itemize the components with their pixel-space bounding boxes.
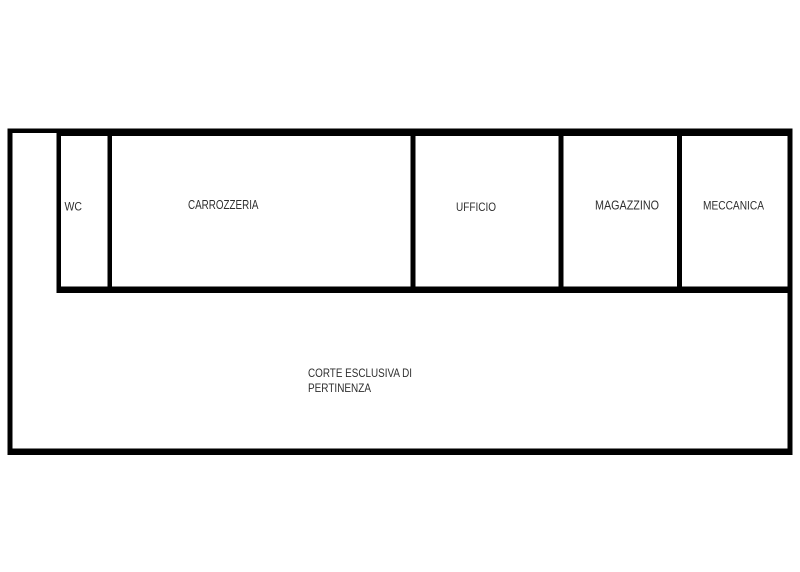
- svg-text:UFFICIO: UFFICIO: [456, 202, 496, 214]
- svg-text:WC: WC: [65, 202, 83, 214]
- svg-text:PERTINENZA: PERTINENZA: [308, 381, 371, 395]
- svg-text:CORTE ESCLUSIVA DI: CORTE ESCLUSIVA DI: [308, 366, 412, 380]
- svg-text:CARROZZERIA: CARROZZERIA: [188, 198, 259, 212]
- svg-text:MAGAZZINO: MAGAZZINO: [595, 199, 659, 213]
- svg-text:MECCANICA: MECCANICA: [703, 199, 764, 213]
